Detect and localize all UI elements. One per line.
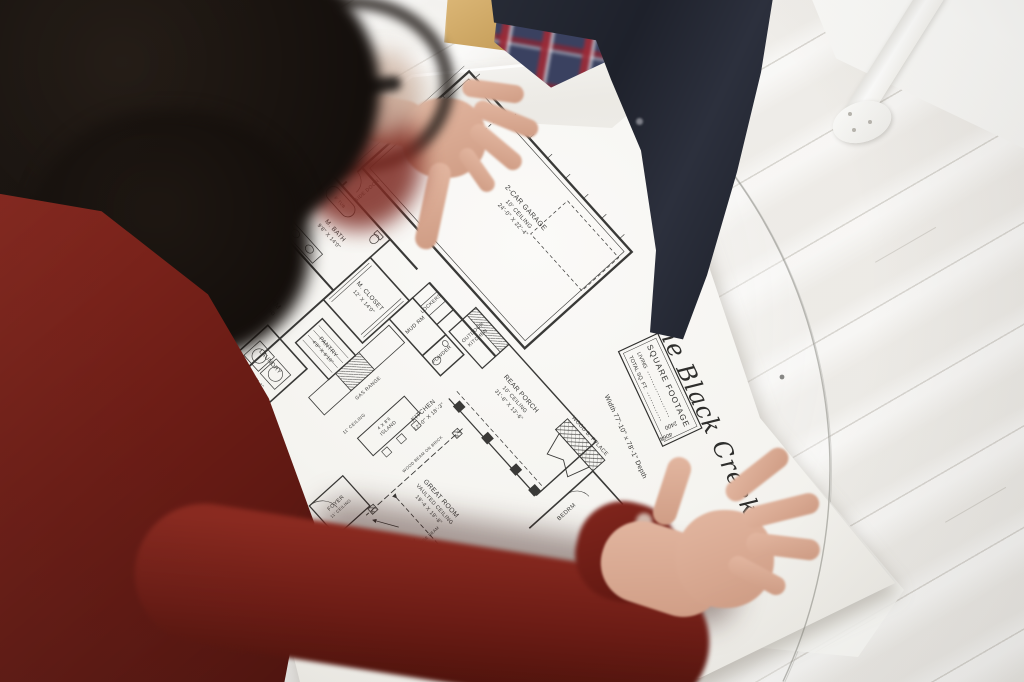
pants-zipper-glint	[636, 118, 643, 125]
bottom-hand-thumb	[650, 454, 694, 528]
bottom-hand	[608, 458, 828, 633]
bottom-hand-finger	[741, 491, 822, 530]
top-hand-finger	[461, 78, 525, 104]
speck-on-glass	[780, 375, 785, 380]
photo-scene: 2-CAR GARAGE 10' CEILING 24'-0" X 22'-4"…	[0, 0, 1024, 682]
